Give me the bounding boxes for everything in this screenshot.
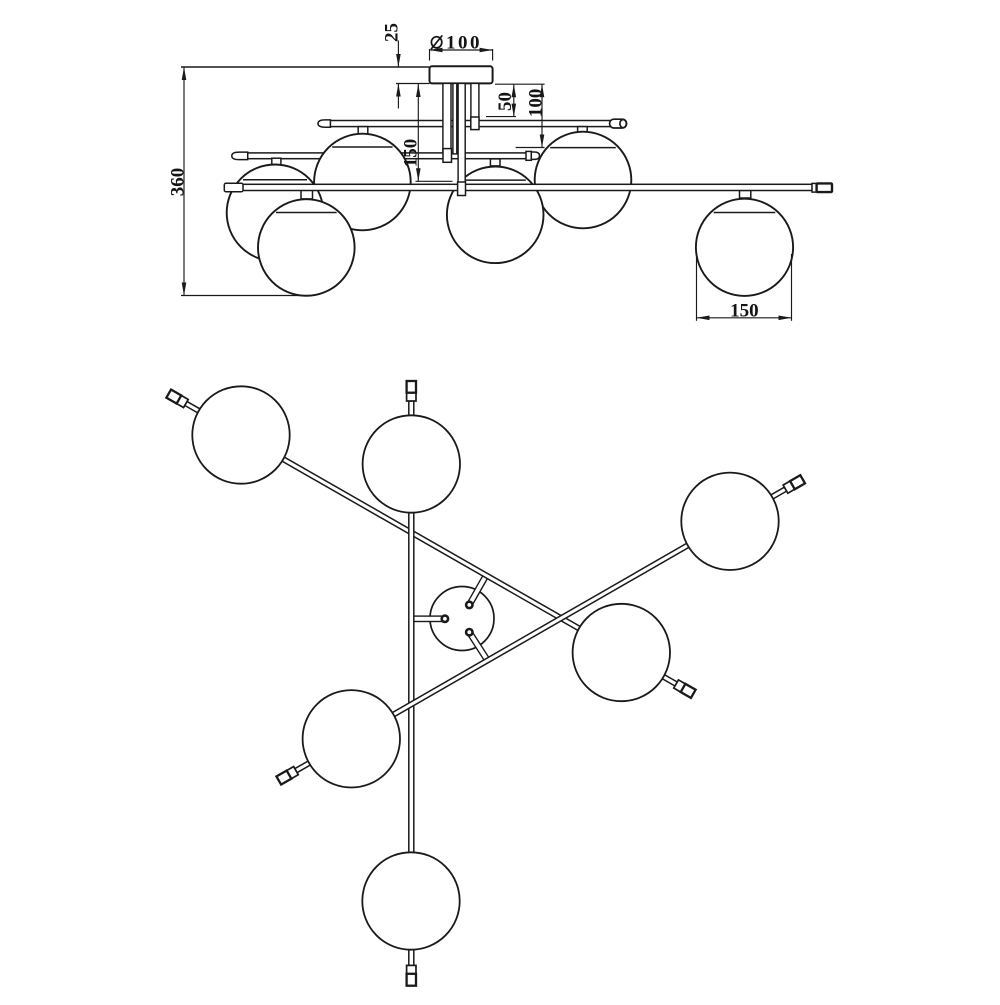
svg-text:150: 150 [401,139,422,168]
svg-text:150: 150 [730,301,759,322]
svg-text:360: 360 [168,168,189,197]
svg-text:50: 50 [495,92,516,111]
svg-text:100: 100 [525,89,546,118]
svg-text:100: 100 [446,32,482,53]
svg-text:25: 25 [381,23,402,42]
